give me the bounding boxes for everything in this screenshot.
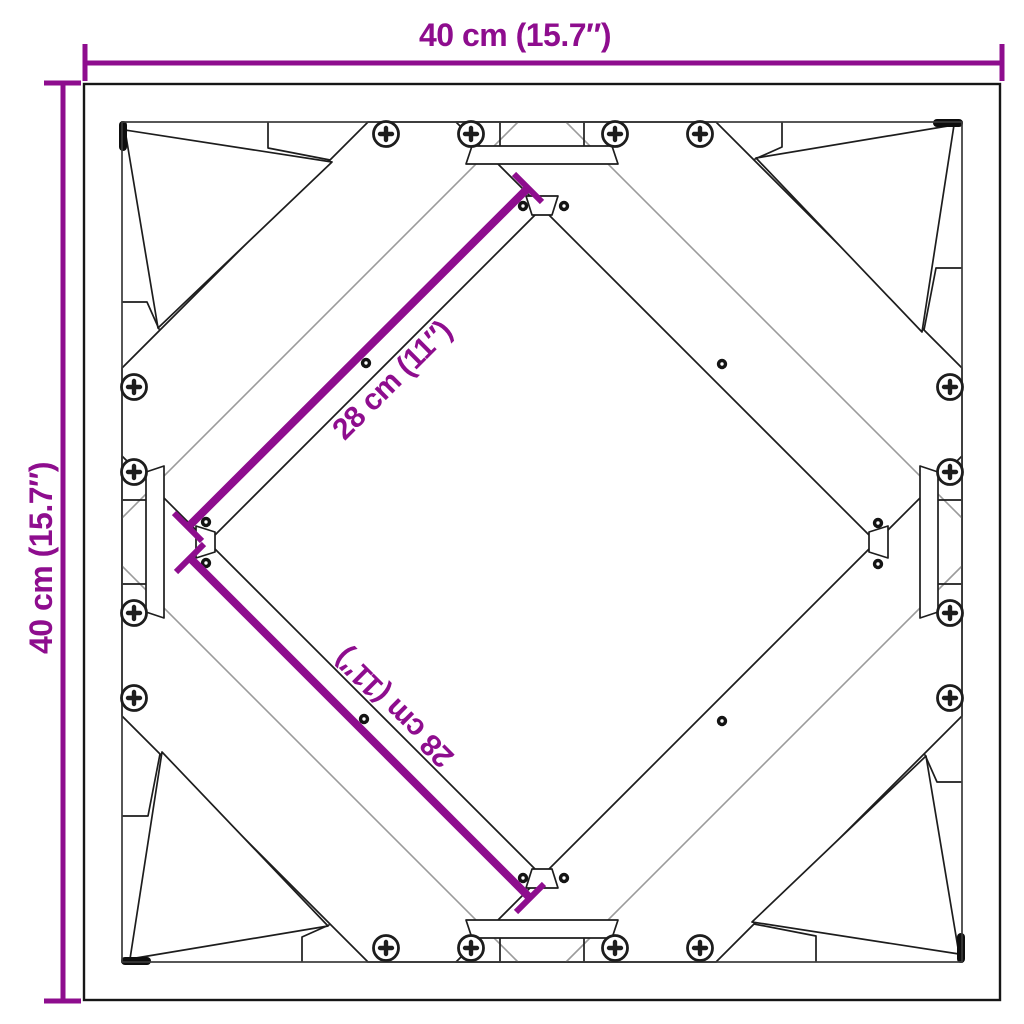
pin-screw-icon xyxy=(717,359,727,369)
phillips-screw-icon xyxy=(688,936,713,961)
pin-screw-icon xyxy=(201,517,211,527)
dimension-label-top: 40 cm (15.7″) xyxy=(419,17,611,53)
phillips-screw-icon xyxy=(688,122,713,147)
phillips-screw-icon xyxy=(938,686,963,711)
phillips-screw-icon xyxy=(938,460,963,485)
pin-screw-icon xyxy=(518,201,528,211)
dimension-left-height: 40 cm (15.7″) xyxy=(23,83,81,1001)
pin-screw-icon xyxy=(518,873,528,883)
phillips-screw-icon xyxy=(122,601,147,626)
pin-screw-icon xyxy=(873,559,883,569)
pin-screw-icon xyxy=(361,358,371,368)
frame-diagram-svg: 40 cm (15.7″) 40 cm (15.7″) 28 cm (11″) … xyxy=(0,0,1024,1024)
phillips-screw-icon xyxy=(374,122,399,147)
pin-screw-icon xyxy=(359,714,369,724)
pin-screw-icon xyxy=(717,716,727,726)
phillips-screw-icon xyxy=(122,686,147,711)
phillips-screw-icon xyxy=(603,936,628,961)
phillips-screw-icon xyxy=(459,122,484,147)
phillips-screw-icon xyxy=(603,122,628,147)
dimension-top-width: 40 cm (15.7″) xyxy=(85,17,1002,81)
dimension-diagram: 40 cm (15.7″) 40 cm (15.7″) 28 cm (11″) … xyxy=(0,0,1024,1024)
phillips-screw-icon xyxy=(459,936,484,961)
pin-screw-icon xyxy=(559,873,569,883)
phillips-screw-icon xyxy=(938,601,963,626)
phillips-screw-icon xyxy=(938,375,963,400)
pin-screw-icon xyxy=(873,518,883,528)
phillips-screw-icon xyxy=(122,375,147,400)
phillips-screw-icon xyxy=(122,460,147,485)
dimension-label-left: 40 cm (15.7″) xyxy=(23,462,59,654)
pin-screw-icon xyxy=(559,201,569,211)
cross-braces xyxy=(122,122,962,962)
phillips-screw-icon xyxy=(374,936,399,961)
